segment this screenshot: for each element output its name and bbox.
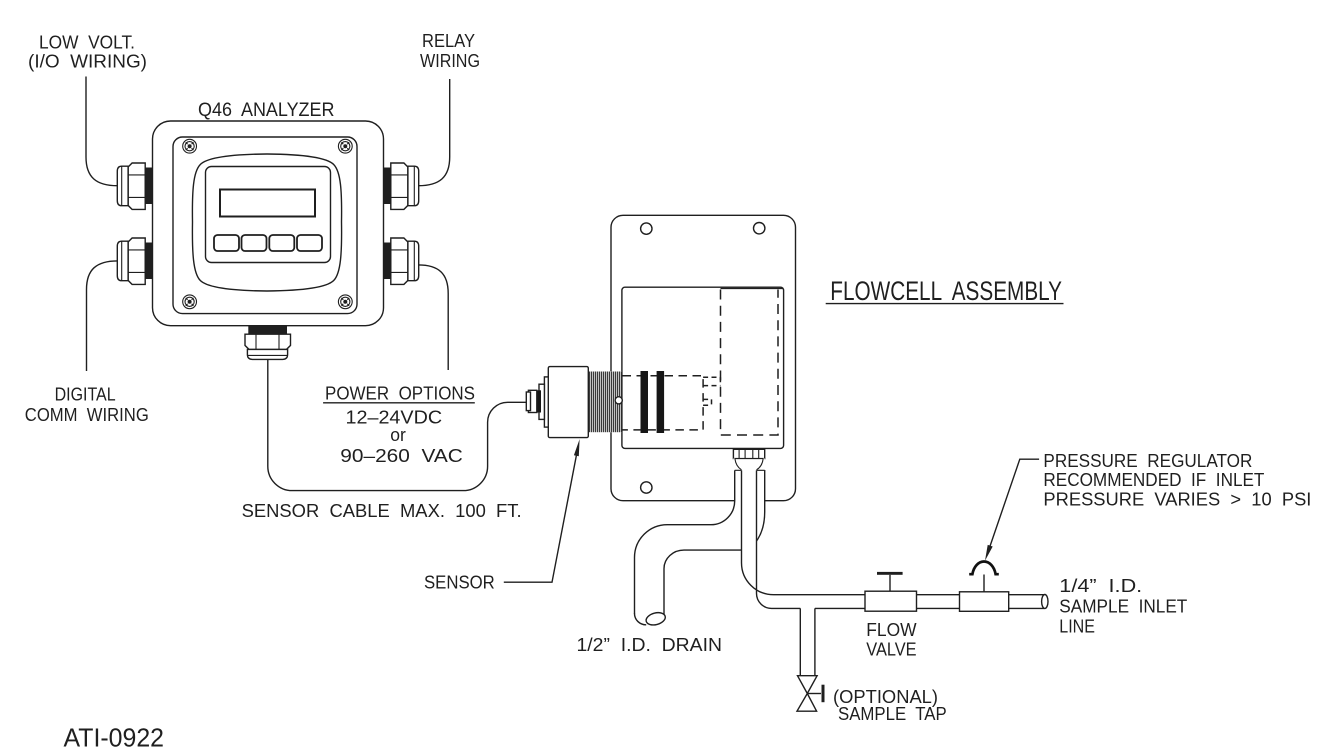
svg-text:Q46 ANALYZER: Q46 ANALYZER: [198, 100, 335, 121]
svg-text:1/2” I.D. DRAIN: 1/2” I.D. DRAIN: [577, 635, 723, 655]
svg-text:POWER OPTIONS: POWER OPTIONS: [325, 384, 475, 404]
svg-text:SENSOR CABLE MAX. 100 FT.: SENSOR CABLE MAX. 100 FT.: [242, 501, 522, 521]
svg-text:VALVE: VALVE: [866, 640, 916, 660]
svg-text:ATI-0922: ATI-0922: [64, 723, 165, 753]
svg-text:PRESSURE VARIES > 10 PSI: PRESSURE VARIES > 10 PSI: [1043, 490, 1311, 510]
svg-text:DIGITAL: DIGITAL: [55, 385, 116, 405]
svg-text:PRESSURE REGULATOR: PRESSURE REGULATOR: [1043, 451, 1252, 471]
svg-text:90–260 VAC: 90–260 VAC: [340, 446, 463, 466]
svg-text:WIRING: WIRING: [420, 51, 480, 71]
svg-text:FLOWCELL ASSEMBLY: FLOWCELL ASSEMBLY: [830, 276, 1062, 306]
svg-text:COMM WIRING: COMM WIRING: [25, 405, 149, 425]
svg-text:SAMPLE INLET: SAMPLE INLET: [1059, 597, 1187, 617]
svg-text:LINE: LINE: [1059, 617, 1095, 637]
svg-text:(I/O WIRING): (I/O WIRING): [28, 52, 147, 72]
svg-text:FLOW: FLOW: [866, 620, 916, 640]
svg-text:RELAY: RELAY: [422, 31, 475, 51]
svg-text:1/4” I.D.: 1/4” I.D.: [1059, 576, 1142, 596]
svg-text:SAMPLE TAP: SAMPLE TAP: [838, 704, 947, 724]
svg-text:LOW VOLT.: LOW VOLT.: [39, 33, 135, 53]
svg-text:or: or: [390, 425, 406, 445]
svg-text:RECOMMENDED IF INLET: RECOMMENDED IF INLET: [1043, 470, 1264, 490]
svg-text:SENSOR: SENSOR: [424, 573, 495, 593]
